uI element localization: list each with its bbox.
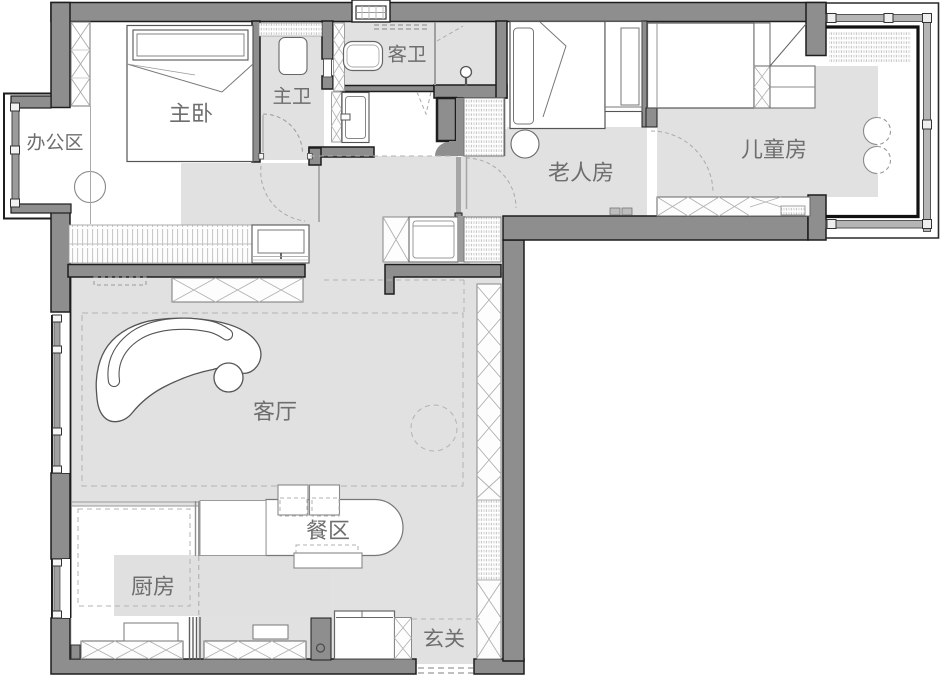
svg-text:办公区: 办公区 bbox=[26, 133, 83, 154]
svg-text:老人房: 老人房 bbox=[548, 160, 614, 185]
svg-text:餐区: 餐区 bbox=[306, 518, 350, 543]
svg-text:客卫: 客卫 bbox=[387, 44, 426, 66]
svg-text:玄关: 玄关 bbox=[423, 628, 465, 651]
svg-text:主卧: 主卧 bbox=[169, 101, 213, 126]
svg-text:厨房: 厨房 bbox=[131, 574, 175, 599]
svg-text:客厅: 客厅 bbox=[253, 399, 297, 424]
svg-text:主卫: 主卫 bbox=[272, 86, 311, 108]
svg-text:儿童房: 儿童房 bbox=[741, 137, 807, 162]
